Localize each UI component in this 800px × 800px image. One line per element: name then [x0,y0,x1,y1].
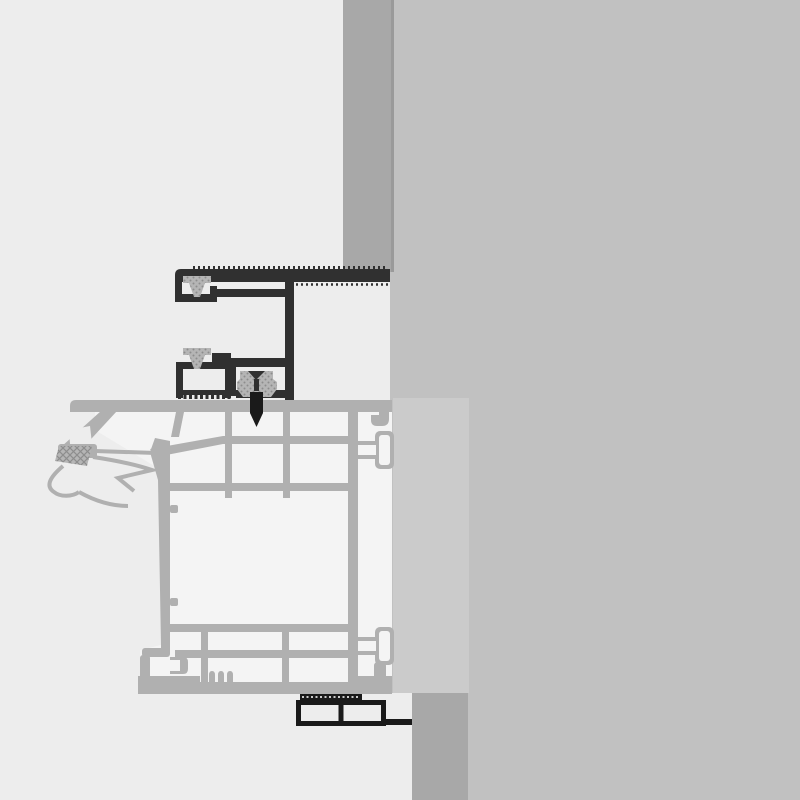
drip-fin-upper [93,457,152,491]
profile-lip [214,289,285,297]
pvc-frame-profile [49,400,394,694]
profile-web [229,358,286,367]
mullion-bottom-b [282,632,289,682]
technical-drawing [0,0,800,800]
wall-reveal-edge-top [391,0,394,272]
tconnector-top-stem-fill [358,445,376,455]
bottom-track-profile [299,694,413,725]
frame-top-plate [70,400,392,412]
brush-bar [183,348,211,355]
gasket-holder-notch [69,426,92,444]
wall-reveal-strip-top [343,0,391,272]
track-extension-bar [383,719,412,725]
frame-right-wall [348,411,358,686]
tconnector-bottom-bar-fill [379,631,390,661]
aluminium-cover-profile [175,268,390,401]
hook-inner-slot [170,660,180,671]
brush-seal-upper [183,276,211,297]
mullion-b [283,412,290,498]
tconnector-bottom-stem-fill [358,641,376,651]
web-row3 [161,624,348,632]
mounting-panel [393,398,469,693]
coextruded-gasket [55,446,92,466]
roller-slit [254,379,259,391]
hook-wall [140,655,150,679]
brush-bar [183,276,211,283]
plate-tooth-1 [209,671,215,682]
mullion-a [225,412,232,498]
web-row2 [161,483,348,491]
cross-section-svg [0,0,800,800]
chamber-nub-lower [170,598,178,606]
mullion-bottom-a [201,632,208,682]
chamber-nub-upper [170,505,178,513]
plate-tooth-2 [218,671,224,682]
wall-structure [343,0,800,800]
shelf-line [95,451,156,453]
drip-fin-lower [49,466,128,506]
tconnector-top-bar-fill [379,435,390,465]
wall-reveal-strip-bottom [412,693,468,800]
profile-stem [285,281,294,400]
plate-tooth-3 [227,671,233,682]
web-row4 [175,650,348,658]
screw-shaft [250,392,263,413]
